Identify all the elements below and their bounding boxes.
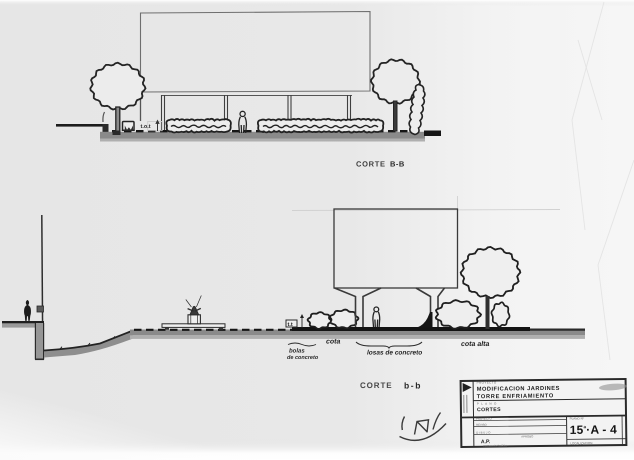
svg-text:CORTE: CORTE (360, 381, 393, 390)
svg-text:t.t: t.t (288, 322, 293, 328)
svg-text:FECHA ENTREGA: FECHA ENTREGA (483, 444, 507, 448)
svg-text:de concreto: de concreto (287, 355, 319, 361)
svg-text:D I B U J O: D I B U J O (476, 430, 491, 434)
svg-text:losas de concreto: losas de concreto (367, 350, 422, 357)
svg-text:CORTE: CORTE (356, 160, 386, 169)
svg-text:MODIFICACION JARDINES: MODIFICACION JARDINES (477, 386, 560, 393)
svg-text:PROYECTO: PROYECTO (477, 381, 497, 385)
svg-text:B-B: B-B (390, 160, 405, 169)
svg-text:CORTES: CORTES (477, 407, 501, 413)
svg-text:15ª·A - 4: 15ª·A - 4 (570, 422, 618, 437)
svg-text:P L A N O: P L A N O (477, 402, 497, 406)
svg-text:REVISO: REVISO (476, 423, 487, 427)
svg-text:t.o.t: t.o.t (141, 124, 151, 130)
svg-text:APROBO: APROBO (521, 434, 534, 438)
svg-text:bolas: bolas (289, 348, 305, 355)
svg-text:cota alta: cota alta (461, 340, 490, 348)
svg-text:b-b: b-b (404, 381, 422, 391)
svg-text:cota: cota (326, 339, 341, 346)
svg-text:TORRE ENFRIAMIENTO: TORRE ENFRIAMIENTO (477, 393, 554, 400)
svg-text:PROYECTO: PROYECTO (476, 417, 493, 421)
svg-text:LOCALIZACION: LOCALIZACION (570, 441, 592, 445)
svg-text:PLANO Nº: PLANO Nº (570, 416, 585, 420)
